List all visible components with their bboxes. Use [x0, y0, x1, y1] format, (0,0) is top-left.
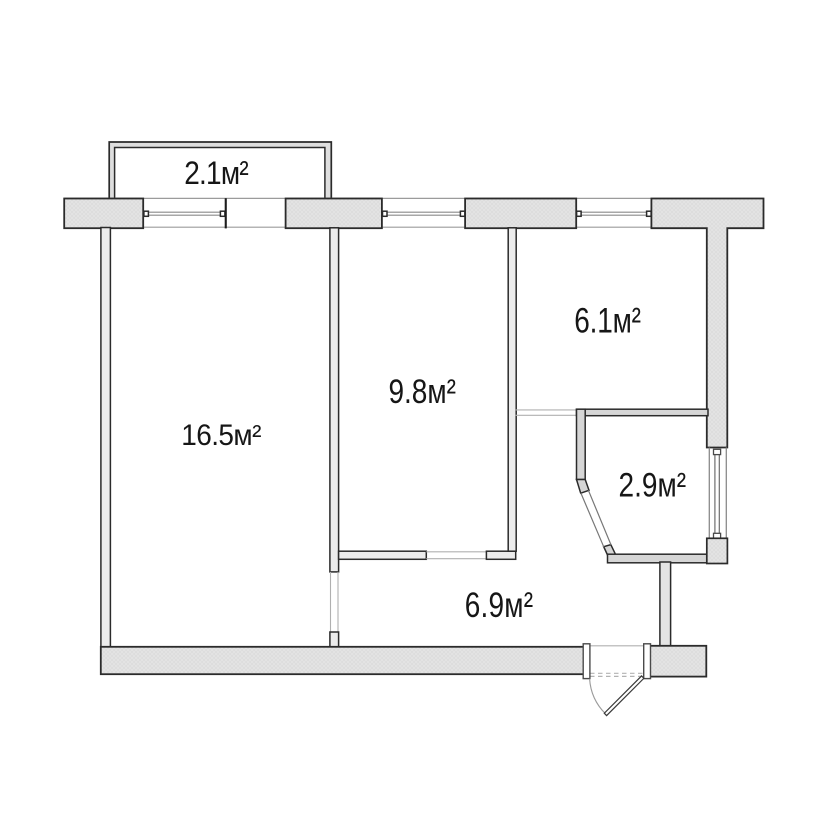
svg-text:6.1м²: 6.1м²: [574, 300, 641, 340]
svg-text:9.8м²: 9.8м²: [389, 373, 456, 411]
svg-text:6.9м²: 6.9м²: [465, 585, 534, 625]
svg-text:16.5м²: 16.5м²: [181, 420, 261, 453]
svg-text:2.9м²: 2.9м²: [619, 466, 687, 504]
svg-text:2.1м²: 2.1м²: [184, 155, 249, 192]
